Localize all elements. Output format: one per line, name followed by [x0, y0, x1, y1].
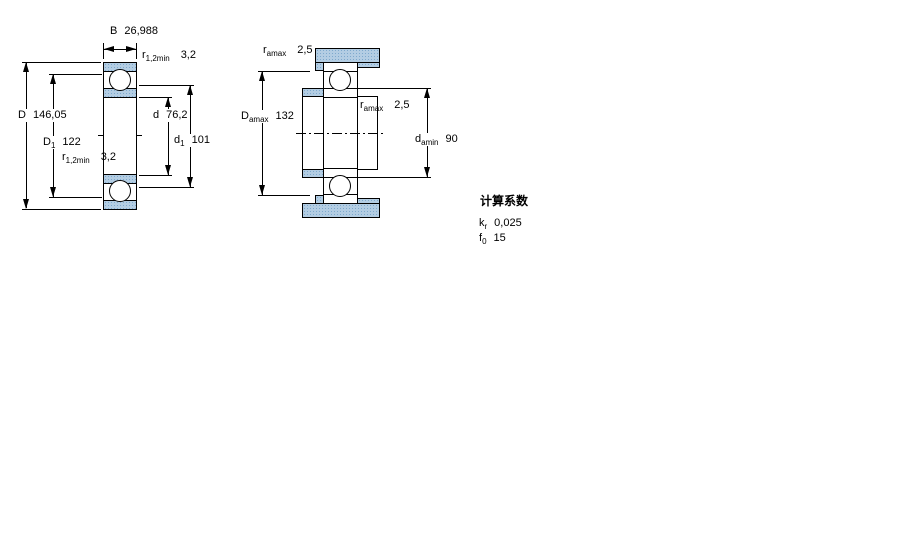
housing-top-section: [315, 48, 380, 63]
arrowhead: [165, 97, 171, 107]
arrowhead: [259, 71, 265, 81]
ball-bottom: [329, 175, 351, 197]
shaft-shoulder-top: [302, 88, 324, 97]
extension-line: [258, 71, 310, 72]
arrowhead: [187, 177, 193, 187]
dim-value: 76,2: [166, 109, 187, 121]
dim-value: 2,5: [394, 99, 409, 111]
arrowhead: [424, 167, 430, 177]
technical-drawing-page: B26,988 D146,05 D1122 d76,2: [0, 0, 900, 560]
dim-subscript: amax: [364, 104, 384, 113]
housing-shoulder-top-right: [357, 62, 380, 68]
dim-label-D1: D1122: [41, 136, 83, 149]
dim-label-d: d76,2: [151, 109, 190, 122]
housing-shoulder-bottom-right: [357, 198, 380, 204]
arrowhead: [187, 85, 193, 95]
ball-top: [329, 69, 351, 91]
dim-subscript: amax: [267, 49, 287, 58]
extension-line: [358, 177, 431, 178]
factor-subscript: 0: [482, 237, 486, 246]
dim-label-ramax-mid: ramax2,5: [360, 99, 410, 112]
arrowhead: [424, 88, 430, 98]
dim-subscript: 1,2min: [146, 54, 170, 63]
extension-line: [49, 74, 102, 75]
extension-line: [139, 85, 194, 86]
dimension-line-D: [26, 63, 27, 208]
dim-value: 132: [276, 110, 294, 122]
dim-label-r-top: r1,2min3,2: [142, 49, 196, 62]
dim-symbol: d: [153, 109, 159, 121]
extension-line: [22, 209, 101, 210]
factor-value: 0,025: [494, 217, 522, 229]
dim-value: 3,2: [101, 151, 116, 163]
dim-symbol: B: [110, 25, 117, 37]
dim-label-B: B26,988: [110, 25, 158, 38]
bearing-body-section: [103, 62, 137, 210]
arrowhead: [23, 199, 29, 209]
factor-value: 15: [494, 232, 506, 244]
dim-subscript: 1: [51, 141, 55, 150]
extension-line: [358, 88, 431, 89]
arrowhead: [23, 62, 29, 72]
dim-label-D: D146,05: [16, 109, 69, 122]
dim-label-d1: d1101: [172, 134, 212, 147]
dim-subscript: amax: [249, 115, 269, 124]
dim-symbol: D: [18, 109, 26, 121]
arrowhead: [104, 46, 114, 52]
dim-value: 3,2: [181, 49, 196, 61]
arrowhead: [165, 165, 171, 175]
dimension-line-Damax: [262, 72, 263, 195]
factor-subscript: r: [485, 222, 488, 231]
dim-value: 146,05: [33, 109, 67, 121]
ball-bottom: [109, 180, 131, 202]
extension-line: [22, 62, 101, 63]
center-axis-line: [296, 133, 384, 134]
dim-subscript: amin: [421, 138, 438, 147]
dim-subscript: 1: [180, 139, 184, 148]
dim-value: 122: [62, 136, 80, 148]
factor-row-kr: kr0,025: [479, 217, 522, 230]
extension-line: [258, 195, 310, 196]
arrowhead: [50, 187, 56, 197]
dim-label-ramax-top: ramax2,5: [263, 44, 313, 57]
dim-symbol: D: [241, 110, 249, 122]
extension-line: [136, 43, 137, 59]
dim-value: 2,5: [297, 44, 312, 56]
calculation-factors-heading: 计算系数: [480, 195, 528, 208]
housing-bottom-section: [302, 203, 380, 218]
dim-value: 101: [192, 134, 210, 146]
extension-line: [139, 175, 172, 176]
factor-symbol: k: [479, 217, 485, 229]
arrowhead: [259, 185, 265, 195]
dim-value: 90: [445, 133, 457, 145]
extension-line: [139, 97, 172, 98]
dim-subscript: 1,2min: [66, 156, 90, 165]
ball-top: [109, 69, 131, 91]
extension-line: [49, 197, 102, 198]
arrowhead: [50, 74, 56, 84]
arrowhead: [126, 46, 136, 52]
shaft-shoulder-bottom: [302, 169, 324, 178]
dim-symbol: D: [43, 136, 51, 148]
extension-line: [139, 187, 194, 188]
dim-label-damin: damin90: [413, 133, 460, 146]
dim-value: 26,988: [124, 25, 158, 37]
dim-label-r-bottom: r1,2min3,2: [62, 151, 116, 164]
factor-row-f0: f015: [479, 232, 506, 245]
dim-label-Damax: Damax132: [239, 110, 296, 123]
